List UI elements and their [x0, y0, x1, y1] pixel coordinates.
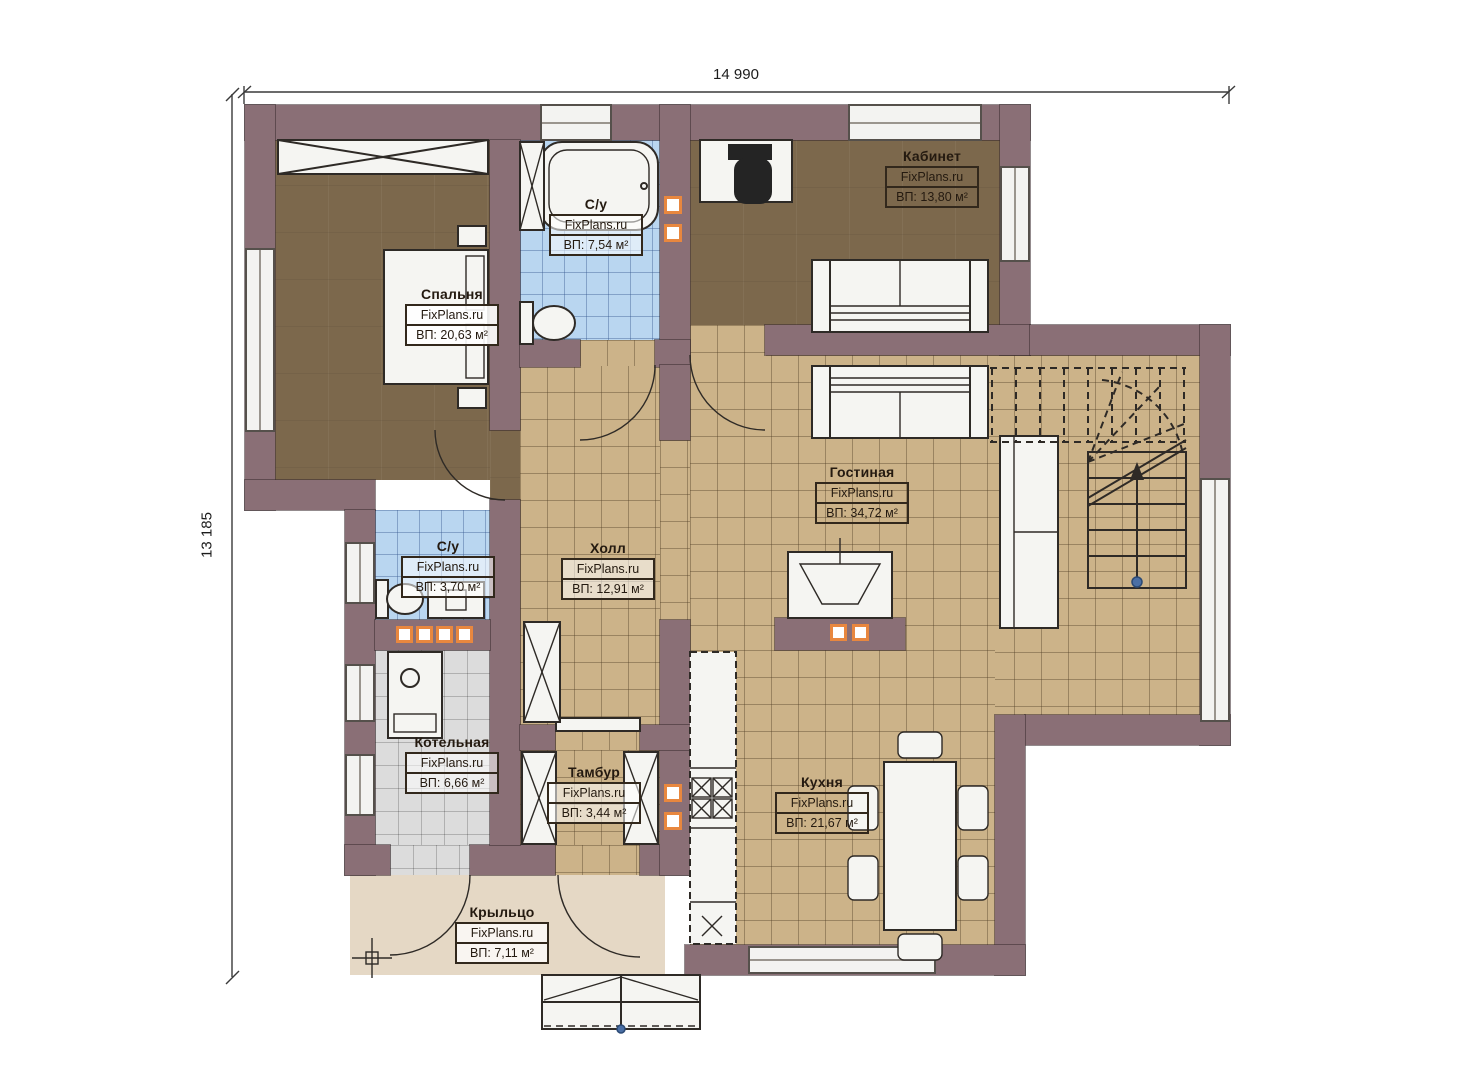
dimension-height-label: 13 185 — [199, 512, 216, 558]
room-label-kitchen: Кухня FixPlans.ru ВП: 21,67 м² — [775, 774, 869, 834]
watermark: FixPlans.ru — [817, 484, 907, 504]
watermark: FixPlans.ru — [549, 784, 639, 804]
boiler-unit — [388, 652, 442, 738]
room-label-living-room: Гостиная FixPlans.ru ВП: 34,72 м² — [815, 464, 909, 524]
bath-cabinet — [520, 142, 544, 230]
vent — [396, 626, 413, 643]
sideboard — [1000, 436, 1058, 628]
vent — [456, 626, 473, 643]
room-label-bathroom-small: С/у FixPlans.ru ВП: 3,70 м² — [401, 538, 495, 598]
vent — [664, 812, 682, 830]
dining-table — [848, 732, 988, 960]
vent — [664, 224, 682, 242]
watermark: FixPlans.ru — [887, 168, 977, 188]
living-sofa — [812, 366, 988, 438]
room-label-office: Кабинет FixPlans.ru ВП: 13,80 м² — [885, 148, 979, 208]
survey-cross — [352, 938, 392, 978]
room-label-porch: Крыльцо FixPlans.ru ВП: 7,11 м² — [455, 904, 549, 964]
office-sofa — [812, 260, 988, 332]
vent — [830, 624, 847, 641]
fireplace — [788, 538, 892, 618]
entry-steps — [542, 975, 700, 1033]
room-label-boiler-room: Котельная FixPlans.ru ВП: 6,66 м² — [405, 734, 499, 794]
office-desk — [700, 140, 792, 204]
dimension-width-label: 14 990 — [713, 66, 759, 83]
room-label-bathroom-top: С/у FixPlans.ru ВП: 7,54 м² — [549, 196, 643, 256]
watermark: FixPlans.ru — [551, 216, 641, 236]
vent — [664, 784, 682, 802]
vent — [664, 196, 682, 214]
floor-plan: 14 990 13 185 Спальня FixPlans.ru ВП: 20… — [0, 0, 1473, 1080]
wardrobe — [278, 140, 488, 174]
furniture-layer — [0, 0, 1473, 1080]
watermark: FixPlans.ru — [777, 794, 867, 814]
watermark: FixPlans.ru — [457, 924, 547, 944]
room-label-hall: Холл FixPlans.ru ВП: 12,91 м² — [561, 540, 655, 600]
room-label-bedroom: Спальня FixPlans.ru ВП: 20,63 м² — [405, 286, 499, 346]
watermark: FixPlans.ru — [563, 560, 653, 580]
watermark: FixPlans.ru — [407, 754, 497, 774]
room-label-vestibule: Тамбур FixPlans.ru ВП: 3,44 м² — [547, 764, 641, 824]
vent — [852, 624, 869, 641]
watermark: FixPlans.ru — [403, 558, 493, 578]
toilet-top — [520, 302, 575, 344]
kitchen-counter — [690, 652, 736, 944]
vent — [436, 626, 453, 643]
watermark: FixPlans.ru — [407, 306, 497, 326]
vent — [416, 626, 433, 643]
